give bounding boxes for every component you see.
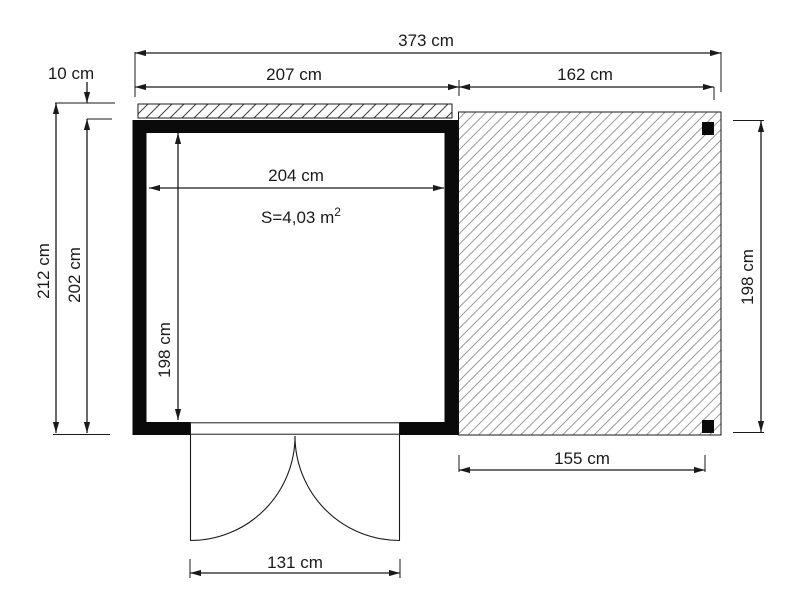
floor-plan-drawing: 373 cm 207 cm 162 cm 10 cm 204 cm 131 cm… (0, 0, 800, 600)
label-floor-area-exponent: 2 (334, 205, 341, 219)
label-shed-outer-depth: 202 cm (65, 247, 84, 303)
label-door-width: 131 cm (267, 553, 323, 572)
terrace-post-bottom-right (702, 420, 714, 433)
wall-left (133, 120, 147, 435)
label-inner-width: 204 cm (268, 166, 324, 185)
terrace-post-top-right (702, 122, 714, 135)
label-floor-area-base: S=4,03 m (261, 208, 334, 227)
wall-bottom-right-segment (400, 422, 459, 435)
double-door (191, 423, 400, 541)
label-roof-overhang: 10 cm (48, 64, 94, 83)
label-shed-width: 207 cm (266, 65, 322, 84)
roof-overhang-strip (138, 104, 452, 118)
wall-right (445, 120, 459, 435)
door-swing-arc-left (191, 436, 296, 541)
label-terrace-depth: 198 cm (738, 249, 757, 305)
label-terrace-floor-width: 155 cm (554, 449, 610, 468)
label-total-depth: 212 cm (34, 243, 53, 299)
label-terrace-width: 162 cm (557, 65, 613, 84)
label-inner-depth: 198 cm (155, 322, 174, 378)
wall-bottom-left-segment (133, 422, 191, 435)
door-threshold (191, 423, 400, 434)
label-floor-area: S=4,03 m2 (261, 205, 341, 227)
door-swing-arc-right (295, 436, 400, 541)
floor-plan-page: 373 cm 207 cm 162 cm 10 cm 204 cm 131 cm… (0, 0, 800, 600)
terrace (459, 112, 722, 435)
wall-top (133, 120, 459, 133)
label-total-width: 373 cm (398, 31, 454, 50)
terrace-floor (459, 112, 722, 435)
